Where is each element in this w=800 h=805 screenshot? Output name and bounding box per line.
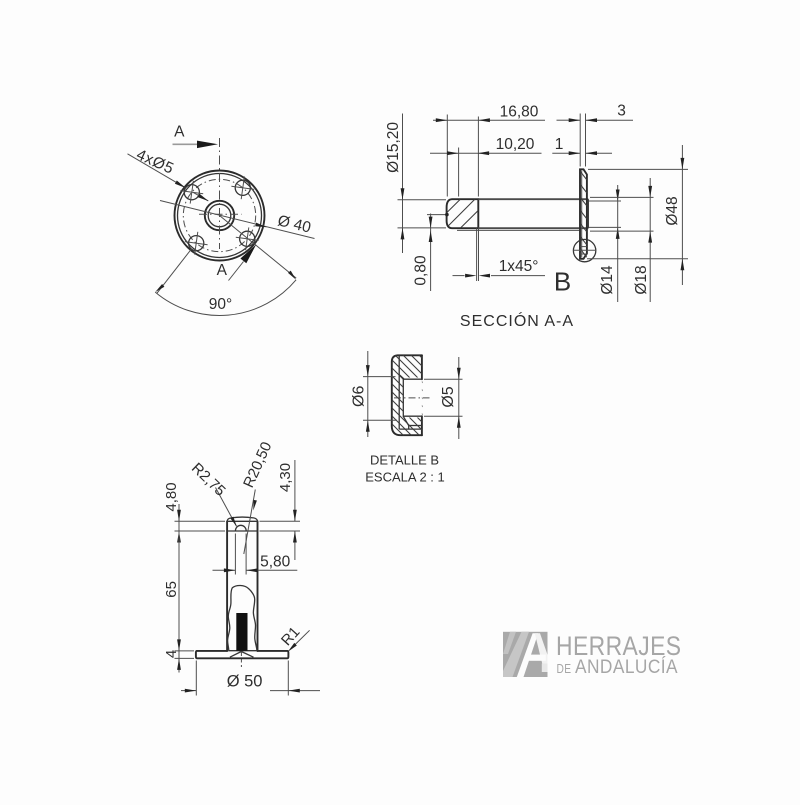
svg-text:Ø14: Ø14 bbox=[599, 265, 616, 295]
svg-text:R1: R1 bbox=[278, 624, 303, 650]
svg-text:Ø18: Ø18 bbox=[633, 265, 650, 294]
svg-text:DETALLE B: DETALLE B bbox=[370, 453, 439, 468]
svg-text:5,80: 5,80 bbox=[260, 553, 291, 570]
svg-text:1: 1 bbox=[555, 136, 564, 153]
svg-text:Ø6: Ø6 bbox=[350, 386, 367, 407]
svg-text:R2,75: R2,75 bbox=[188, 460, 229, 500]
svg-text:Ø48: Ø48 bbox=[664, 196, 681, 225]
svg-text:1x45°: 1x45° bbox=[499, 258, 539, 275]
svg-text:4,80: 4,80 bbox=[163, 482, 180, 511]
svg-text:A: A bbox=[217, 262, 228, 279]
svg-text:A: A bbox=[174, 124, 185, 141]
svg-text:ANDALUCÍA: ANDALUCÍA bbox=[575, 655, 678, 678]
svg-text:SECCIÓN A-A: SECCIÓN A-A bbox=[460, 311, 574, 330]
svg-text:90°: 90° bbox=[209, 296, 232, 313]
svg-text:Ø5: Ø5 bbox=[440, 386, 457, 407]
svg-text:65: 65 bbox=[163, 581, 180, 598]
svg-text:4,30: 4,30 bbox=[277, 463, 294, 492]
svg-text:ESCALA 2 : 1: ESCALA 2 : 1 bbox=[365, 470, 445, 485]
svg-text:DE: DE bbox=[557, 662, 572, 676]
svg-text:10,20: 10,20 bbox=[496, 136, 535, 153]
svg-text:4: 4 bbox=[163, 650, 180, 658]
svg-text:0,80: 0,80 bbox=[413, 255, 430, 286]
svg-text:R20,50: R20,50 bbox=[240, 439, 275, 490]
svg-text:B: B bbox=[554, 266, 571, 296]
svg-text:Ø 50: Ø 50 bbox=[227, 673, 263, 691]
svg-text:Ø 40: Ø 40 bbox=[276, 212, 313, 236]
svg-text:Ø15,20: Ø15,20 bbox=[385, 122, 402, 173]
svg-text:16,80: 16,80 bbox=[500, 104, 539, 121]
svg-text:3: 3 bbox=[617, 103, 626, 120]
svg-text:4xØ5: 4xØ5 bbox=[134, 146, 177, 177]
